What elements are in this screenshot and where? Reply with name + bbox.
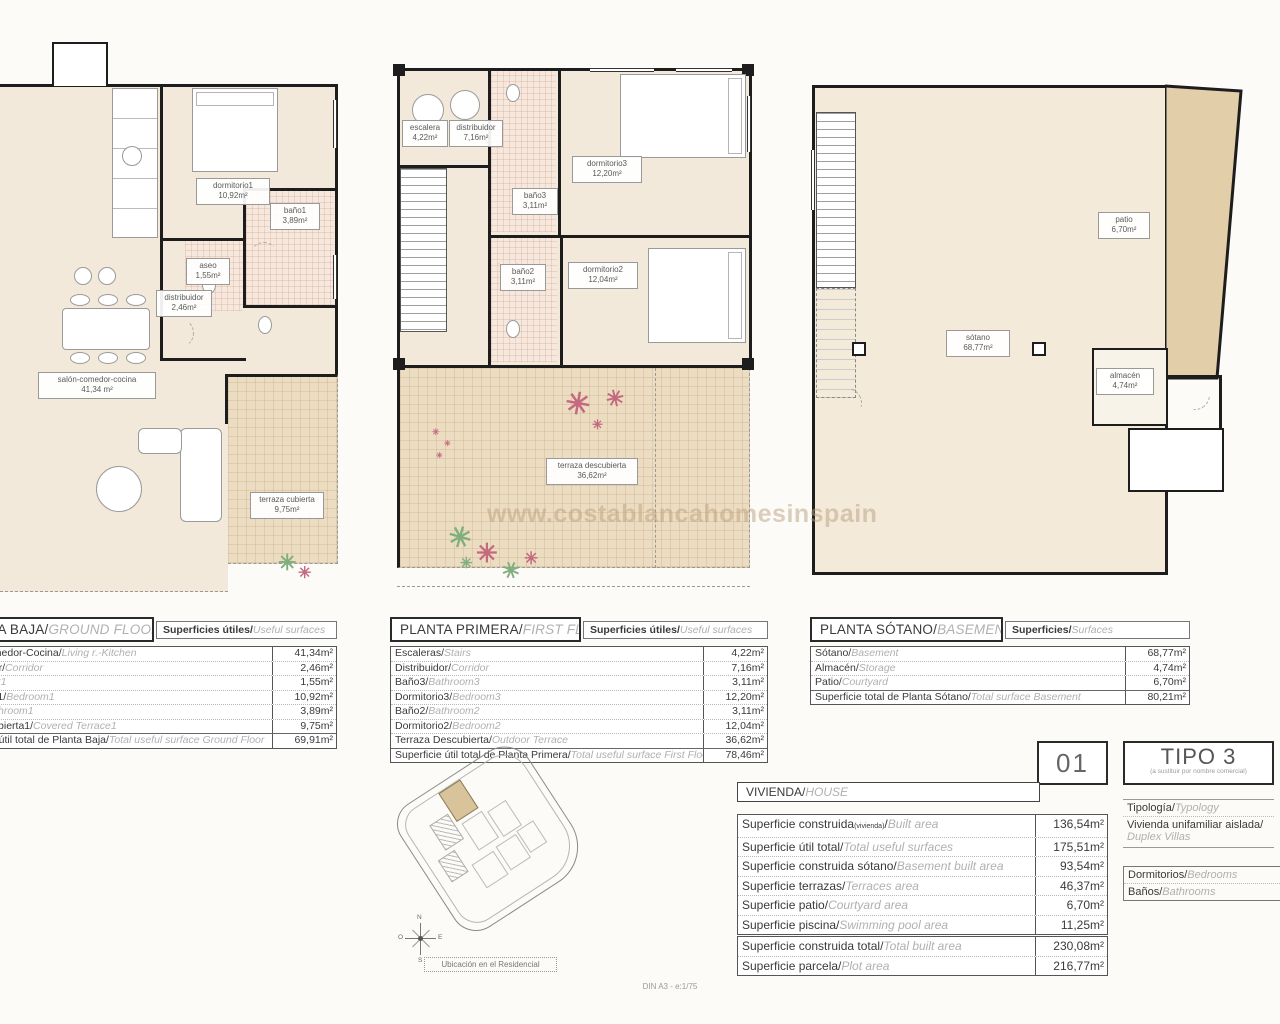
pillar-icon <box>1032 342 1046 356</box>
door-swing <box>250 242 278 270</box>
flower-icon: ✳ <box>432 428 440 437</box>
chair-icon <box>70 294 90 306</box>
chair-icon <box>98 352 118 364</box>
patio-wedge <box>1165 82 1255 382</box>
stool-icon <box>98 267 116 285</box>
surfaces-table: Escaleras/Stairs4,22m² Distribuidor/Corr… <box>390 646 768 763</box>
flower-icon: ✳ <box>444 440 451 448</box>
unit-number-box: 01 <box>1037 741 1108 785</box>
room-label: distribuidor7,16m² <box>449 120 503 147</box>
chair-icon <box>70 352 90 364</box>
table-row: Superficie útil total/Total useful surfa… <box>738 837 1107 857</box>
table-title: PLANTA BAJA/GROUND FLOOR <box>0 617 154 642</box>
table-row: Baño3/Bathroom33,11m² <box>391 675 767 690</box>
room-label: terraza descubierta36,62m² <box>546 458 638 485</box>
flower-icon: ✳ <box>592 418 603 431</box>
wall <box>1219 375 1222 431</box>
wall <box>1165 375 1222 378</box>
sofa-icon <box>180 428 222 522</box>
table-subtitle: Superficies útiles/Useful surfaces <box>156 621 337 639</box>
table-subtitle: Superficies/Surfaces <box>1005 621 1190 639</box>
table-row: Sótano/Basement68,77m² <box>811 647 1189 661</box>
floorplan-sheet: { "watermark": "www.costablancahomesinsp… <box>0 0 1280 1024</box>
table-row: Superficie construida total/Total built … <box>738 937 1107 956</box>
flower-icon: ✳ <box>298 566 311 582</box>
wall <box>397 165 488 168</box>
entry-porch <box>52 42 108 86</box>
chair-icon <box>98 294 118 306</box>
typology-label: Tipología/Typology <box>1123 800 1274 817</box>
watermark: www.costablancahomesinspain <box>487 500 877 529</box>
room-label: salón-comedor-cocina41,34 m² <box>38 372 156 399</box>
room-label: baño13,89m² <box>270 203 320 230</box>
coffee-table <box>96 466 142 512</box>
table-row: Dormitorio1/Bedroom110,92m² <box>0 690 336 705</box>
window-icon <box>333 255 337 299</box>
table-row: Aseo/Toilet11,55m² <box>0 675 336 690</box>
room-label: dormitorio110,92m² <box>196 178 270 205</box>
flower-icon: ✳ <box>436 452 443 460</box>
site-caption: Ubicación en el Residencial <box>424 957 557 972</box>
wall <box>558 68 561 235</box>
house-totals-table: Superficie construida total/Total built … <box>737 936 1108 976</box>
room-label: almacén4,74m² <box>1096 368 1154 395</box>
chair-icon <box>126 352 146 364</box>
window-icon <box>590 68 654 72</box>
table-row: Superficie parcela/Plot area216,77m² <box>738 956 1107 976</box>
basement-annex-room <box>1128 428 1224 492</box>
flower-icon: ✳ <box>524 550 538 567</box>
toilet-icon <box>258 316 272 334</box>
flower-icon: ✳ <box>278 552 296 574</box>
wall <box>160 238 246 241</box>
bed-icon <box>620 74 746 158</box>
table-total-row: Superficie total de Planta Sótano/Total … <box>811 690 1189 705</box>
table-row: Superficie patio/Courtyard area6,70m² <box>738 895 1107 915</box>
window-icon <box>333 100 337 148</box>
table-total-row: Superficie útil total de Planta Baja/Tot… <box>0 733 336 748</box>
room-label: dormitorio312,20m² <box>572 156 642 183</box>
table-row: Superficie terrazas/Terraces area46,37m² <box>738 876 1107 896</box>
staircase-dashed <box>816 288 856 398</box>
table-row: Dormitorio2/Bedroom212,04m² <box>391 719 767 734</box>
room-label: terraza cubierta9,75m² <box>250 492 324 519</box>
column-marker <box>742 358 754 370</box>
surfaces-table: Sótano/Basement68,77m² Almacén/Storage4,… <box>810 646 1190 705</box>
house-title-box: VIVIENDA/HOUSE <box>737 782 1040 802</box>
window-icon <box>676 68 732 72</box>
table-row: Superficie construida sótano/Basement bu… <box>738 856 1107 876</box>
toilet-icon <box>506 84 520 102</box>
pillar-icon <box>852 342 866 356</box>
room-label: baño23,11m² <box>500 264 546 291</box>
unit-type-note: (a sustituir por nombre comercial) <box>1125 768 1272 775</box>
table-total-row: Superficie útil total de Planta Primera/… <box>391 748 767 763</box>
room-label: dormitorio212,04m² <box>568 262 638 289</box>
wall <box>160 84 163 241</box>
table-row: Patio/Courtyard6,70m² <box>811 675 1189 690</box>
room-label: aseo1,55m² <box>186 258 230 285</box>
table-row: Almacén/Storage4,74m² <box>811 661 1189 676</box>
table-row: Superficie construida(vivienda)/Built ar… <box>738 815 1107 837</box>
table-row: Distribuidor/Corridor2,46m² <box>0 661 336 676</box>
table-row: Baño1/Bathroom13,89m² <box>0 704 336 719</box>
wall <box>243 188 246 308</box>
typology-value: Vivienda unifamiliar aislada/Duplex Vill… <box>1123 817 1274 847</box>
door-swing <box>164 318 194 348</box>
bed-icon <box>192 88 278 172</box>
chair-icon <box>126 294 146 306</box>
table-row: Superficie piscina/Swimming pool area11,… <box>738 915 1107 935</box>
terrace-boundary <box>655 368 656 568</box>
surfaces-table: Salón-Comedor-Cocina/Living r.-Kitchen41… <box>0 646 337 749</box>
table-title: PLANTA PRIMERA/FIRST FLOOR <box>390 617 581 642</box>
terrace-outline <box>397 586 750 587</box>
table-subtitle: Superficies útiles/Useful surfaces <box>583 621 768 639</box>
bedrooms-bathrooms-block: Dormitorios/Bedrooms Baños/Bathrooms <box>1123 866 1280 901</box>
wall <box>488 235 752 238</box>
wall <box>225 374 228 424</box>
flower-icon: ✳ <box>476 540 498 566</box>
bathrooms-row: Baños/Bathrooms <box>1124 884 1280 900</box>
typology-block: Tipología/Typology Vivienda unifamiliar … <box>1123 799 1274 848</box>
column-marker <box>393 64 405 76</box>
bed-icon <box>648 248 746 343</box>
column-marker <box>393 358 405 370</box>
table-row: Distribuidor/Corridor7,16m² <box>391 661 767 676</box>
site-outline <box>388 735 594 941</box>
planter-icon <box>450 90 480 120</box>
dining-table <box>62 308 150 350</box>
window-icon <box>811 150 815 210</box>
wall <box>560 238 563 365</box>
wall <box>160 358 246 361</box>
flower-icon: ✳ <box>563 388 593 422</box>
room-label: patio6,70m² <box>1098 212 1150 239</box>
wall <box>243 305 338 308</box>
room-label: escalera4,22m² <box>402 120 448 147</box>
toilet-icon <box>506 320 520 338</box>
ground-covered-terrace <box>228 374 338 564</box>
room-label: distribuidor2,46m² <box>156 290 212 317</box>
room-label: sótano68,77m² <box>946 330 1010 357</box>
house-areas-table: Superficie construida(vivienda)/Built ar… <box>737 814 1108 935</box>
wall <box>488 68 491 365</box>
room-label: baño33,11m² <box>512 188 558 215</box>
table-title: PLANTA SÓTANO/BASEMENT <box>810 617 1003 642</box>
table-row: Dormitorio3/Bedroom312,20m² <box>391 690 767 705</box>
staircase <box>816 112 856 288</box>
table-row: Salón-Comedor-Cocina/Living r.-Kitchen41… <box>0 647 336 661</box>
table-row: Escaleras/Stairs4,22m² <box>391 647 767 661</box>
bedrooms-row: Dormitorios/Bedrooms <box>1124 867 1280 884</box>
unit-type: TIPO 3 <box>1125 746 1272 768</box>
table-row: Terraza cubierta1/Covered Terrace19,75m² <box>0 719 336 734</box>
staircase <box>400 168 447 332</box>
window-icon <box>747 96 751 152</box>
scale-note: DIN A3 - e:1/75 <box>600 982 740 991</box>
flower-icon: ✳ <box>460 556 473 571</box>
table-row: Terraza Descubierta/Outdoor Terrace36,62… <box>391 733 767 748</box>
table-row: Baño2/Bathroom23,11m² <box>391 704 767 719</box>
sofa-icon <box>138 428 182 454</box>
kitchen-sink <box>122 146 142 166</box>
stool-icon <box>74 267 92 285</box>
unit-type-box: TIPO 3 (a sustituir por nombre comercial… <box>1123 741 1274 785</box>
